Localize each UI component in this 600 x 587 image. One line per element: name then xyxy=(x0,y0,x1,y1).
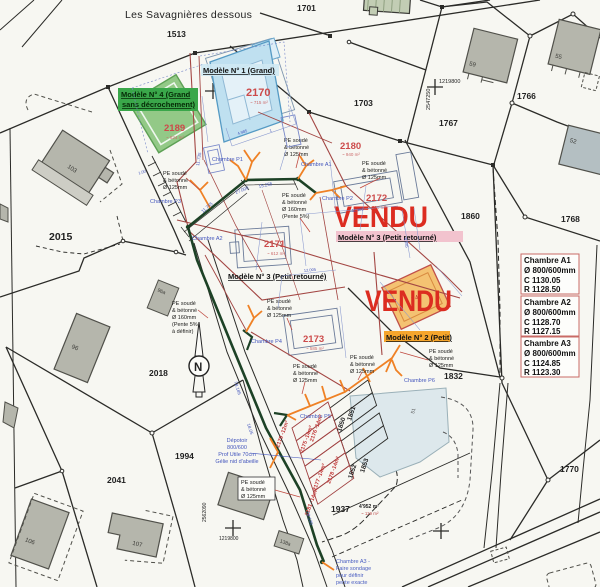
svg-text:Ø 125mm: Ø 125mm xyxy=(267,313,292,319)
svg-text:pente exacte: pente exacte xyxy=(336,580,368,586)
svg-text:à définir): à définir) xyxy=(172,329,194,335)
svg-text:PE soudé: PE soudé xyxy=(241,480,265,486)
svg-text:& bétonné: & bétonné xyxy=(241,487,266,493)
svg-text:Modèle N° 1 (Grand): Modèle N° 1 (Grand) xyxy=(203,66,275,75)
svg-text:~ 119 m²: ~ 119 m² xyxy=(361,511,379,516)
svg-text:VENDU: VENDU xyxy=(334,201,428,234)
svg-text:PE soudé: PE soudé xyxy=(172,301,196,307)
svg-text:Chambre P5: Chambre P5 xyxy=(300,414,331,420)
svg-text:Ø 800/600mm: Ø 800/600mm xyxy=(524,266,576,275)
svg-text:& bétonné: & bétonné xyxy=(267,306,292,312)
svg-text:Les Savagnières dessous: Les Savagnières dessous xyxy=(125,9,252,21)
svg-text:Faire sondage: Faire sondage xyxy=(336,566,371,572)
svg-text:1766: 1766 xyxy=(517,91,536,101)
svg-text:2547250: 2547250 xyxy=(426,89,432,110)
svg-text:N: N xyxy=(194,362,202,374)
svg-text:Ø 125mm: Ø 125mm xyxy=(350,369,375,375)
svg-text:Ø 800/600mm: Ø 800/600mm xyxy=(524,349,576,358)
svg-text:VENDU: VENDU xyxy=(365,285,452,318)
svg-text:Chambre A3 -: Chambre A3 - xyxy=(336,559,370,565)
svg-text:1860: 1860 xyxy=(461,211,480,221)
svg-text:R 1123.30: R 1123.30 xyxy=(524,368,561,377)
svg-text:Ø 160mm: Ø 160mm xyxy=(282,207,307,213)
svg-text:1219800: 1219800 xyxy=(439,79,460,85)
svg-text:Chambre P1: Chambre P1 xyxy=(212,157,243,163)
svg-text:~ 612 m²: ~ 612 m² xyxy=(267,251,285,256)
svg-text:1937: 1937 xyxy=(331,504,350,514)
svg-text:2170: 2170 xyxy=(246,87,270,99)
svg-text:Modèle N° 2 (Petit): Modèle N° 2 (Petit) xyxy=(386,333,452,342)
svg-text:& bétonné: & bétonné xyxy=(362,168,387,174)
svg-text:2171: 2171 xyxy=(264,239,286,250)
svg-text:& bétonné: & bétonné xyxy=(284,145,309,151)
svg-text:Chambre A1: Chambre A1 xyxy=(524,256,571,265)
svg-text:2173: 2173 xyxy=(303,334,324,345)
svg-text:2180: 2180 xyxy=(340,141,361,152)
svg-text:PE soudé: PE soudé xyxy=(362,161,386,167)
svg-text:1701: 1701 xyxy=(297,3,316,13)
svg-text:Ø 125mm: Ø 125mm xyxy=(163,185,188,191)
svg-text:PE soudé: PE soudé xyxy=(163,171,187,177)
svg-text:Ø 800/600mm: Ø 800/600mm xyxy=(524,308,576,317)
svg-text:Ø 160mm: Ø 160mm xyxy=(172,315,197,321)
svg-text:Dépotoir: Dépotoir xyxy=(227,438,248,444)
svg-text:Chambre P6: Chambre P6 xyxy=(404,378,435,384)
svg-text:1994: 1994 xyxy=(175,451,194,461)
svg-text:Ø 125mm: Ø 125mm xyxy=(284,152,309,158)
svg-text:PE soudé: PE soudé xyxy=(293,364,317,370)
svg-text:Chambre A3: Chambre A3 xyxy=(524,339,571,348)
svg-text:R 1127.15: R 1127.15 xyxy=(524,327,561,336)
svg-text:~ 624 m²: ~ 624 m² xyxy=(166,135,184,140)
svg-text:Modèle N° 4 (Grand: Modèle N° 4 (Grand xyxy=(121,90,191,99)
svg-text:4'952 m²: 4'952 m² xyxy=(359,504,379,510)
svg-text:Chambre P3: Chambre P3 xyxy=(150,199,181,205)
svg-text:C 1124.85: C 1124.85 xyxy=(524,359,561,368)
svg-text:~ 940 m²: ~ 940 m² xyxy=(342,152,360,157)
svg-text:sans décrochement): sans décrochement) xyxy=(122,100,195,109)
svg-text:2015: 2015 xyxy=(49,231,73,243)
svg-text:800/600: 800/600 xyxy=(227,445,247,451)
svg-text:PE soudé: PE soudé xyxy=(429,349,453,355)
svg-text:Chambre A1: Chambre A1 xyxy=(301,162,332,168)
svg-text:2041: 2041 xyxy=(107,475,126,485)
svg-text:Chambre P4: Chambre P4 xyxy=(251,339,282,345)
svg-text:~ 715 m²: ~ 715 m² xyxy=(250,100,268,105)
svg-text:Chambre A2: Chambre A2 xyxy=(524,298,571,307)
svg-text:(Pente 5%): (Pente 5%) xyxy=(282,214,310,220)
svg-text:1767: 1767 xyxy=(439,118,458,128)
svg-text:2562090: 2562090 xyxy=(202,502,208,522)
svg-text:& bétonné: & bétonné xyxy=(163,178,188,184)
svg-text:2189: 2189 xyxy=(164,123,185,134)
svg-text:1770: 1770 xyxy=(560,464,579,474)
svg-text:PE soudé: PE soudé xyxy=(282,193,306,199)
svg-text:Ø 125mm: Ø 125mm xyxy=(429,363,454,369)
svg-text:2018: 2018 xyxy=(149,368,168,378)
svg-text:Ø 125mm: Ø 125mm xyxy=(293,378,318,384)
svg-text:Ø 125mm: Ø 125mm xyxy=(241,494,266,500)
svg-text:Ø 125mm: Ø 125mm xyxy=(362,175,387,181)
svg-text:~ 585 m²: ~ 585 m² xyxy=(306,346,324,351)
svg-text:PE soudé: PE soudé xyxy=(284,138,308,144)
svg-text:C 1128.70: C 1128.70 xyxy=(524,318,561,327)
svg-text:& bétonné: & bétonné xyxy=(293,371,318,377)
svg-text:& bétonné: & bétonné xyxy=(350,362,375,368)
svg-text:Chambre P2: Chambre P2 xyxy=(322,196,353,202)
svg-text:1219800: 1219800 xyxy=(219,536,239,542)
svg-text:1768: 1768 xyxy=(561,214,580,224)
svg-text:& bétonné: & bétonné xyxy=(429,356,454,362)
svg-text:PE soudé: PE soudé xyxy=(350,355,374,361)
svg-text:Modèle N° 3 (Petit retourné): Modèle N° 3 (Petit retourné) xyxy=(338,233,437,242)
svg-text:Chambre A2: Chambre A2 xyxy=(192,236,223,242)
svg-text:pour définir: pour définir xyxy=(336,573,364,579)
svg-text:1513: 1513 xyxy=(167,29,186,39)
svg-text:(Pente 5%: (Pente 5% xyxy=(172,322,198,328)
svg-text:R 1128.50: R 1128.50 xyxy=(524,285,561,294)
svg-text:1703: 1703 xyxy=(354,98,373,108)
svg-text:& bétonné: & bétonné xyxy=(172,308,197,314)
svg-text:Gélie nid d'abeille: Gélie nid d'abeille xyxy=(215,459,258,465)
svg-text:1832: 1832 xyxy=(444,371,463,381)
svg-text:Modèle N° 3 (Petit retourné): Modèle N° 3 (Petit retourné) xyxy=(228,272,327,281)
svg-text:& bétonné: & bétonné xyxy=(282,200,307,206)
svg-text:C 1130.05: C 1130.05 xyxy=(524,276,561,285)
